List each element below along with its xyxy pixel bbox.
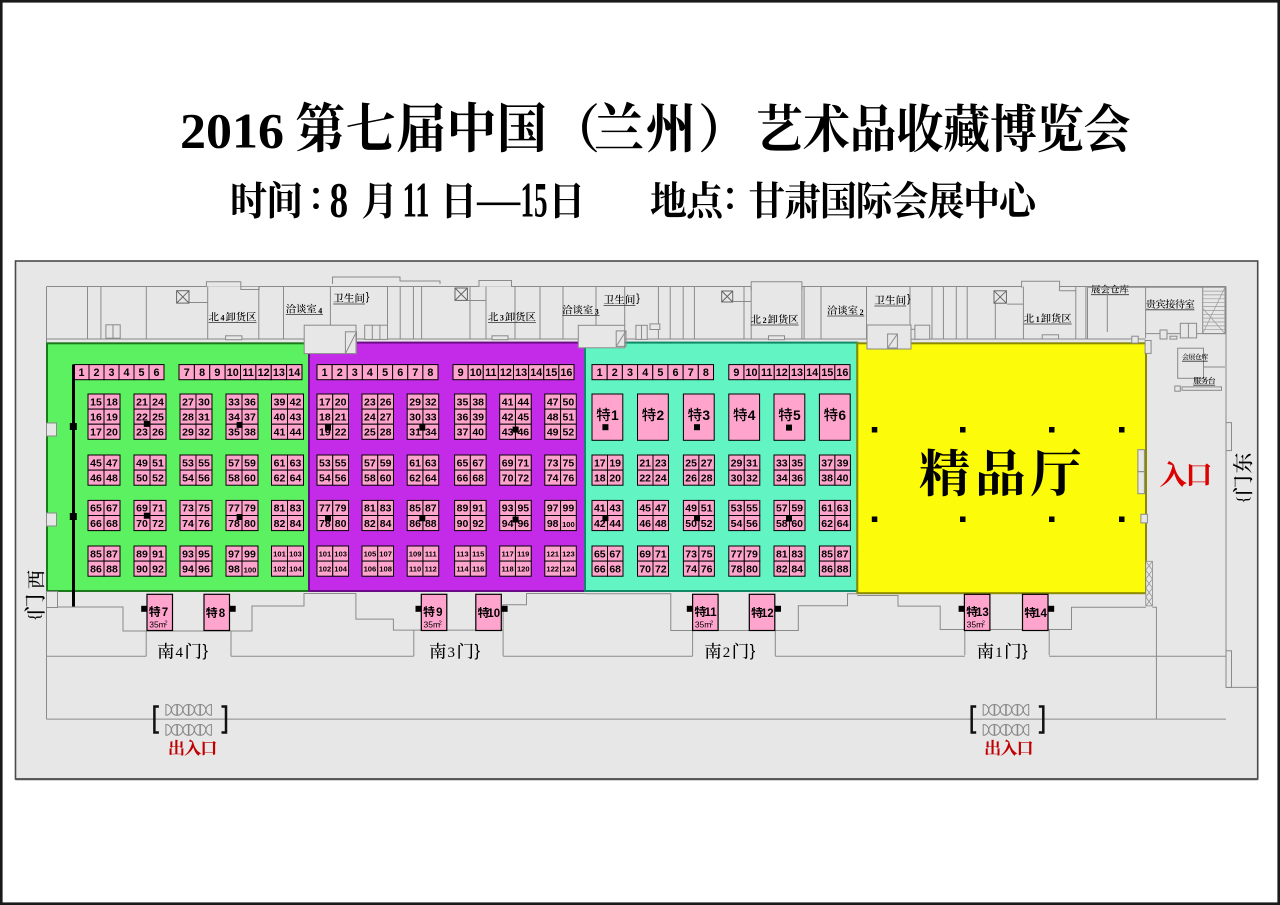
svg-text:80: 80 <box>746 563 758 575</box>
svg-text:37: 37 <box>821 457 833 469</box>
svg-text:36: 36 <box>457 411 469 423</box>
svg-text:11: 11 <box>403 172 430 228</box>
svg-text:94: 94 <box>182 563 194 575</box>
svg-text:}: } <box>636 293 640 305</box>
svg-text:50: 50 <box>136 472 148 484</box>
svg-text:61: 61 <box>821 503 833 515</box>
svg-text:36: 36 <box>244 396 256 408</box>
svg-text:11: 11 <box>242 367 253 379</box>
svg-text:80: 80 <box>244 518 256 530</box>
svg-text:62: 62 <box>821 518 833 530</box>
svg-text:2: 2 <box>164 621 167 627</box>
svg-text:5: 5 <box>793 408 801 423</box>
svg-text:16: 16 <box>560 367 572 379</box>
svg-text:2: 2 <box>93 367 99 379</box>
svg-text:26: 26 <box>380 396 392 408</box>
svg-text:24: 24 <box>152 396 164 408</box>
svg-text:86: 86 <box>821 563 833 575</box>
svg-text:57: 57 <box>228 457 240 469</box>
svg-text:39: 39 <box>274 396 286 408</box>
svg-text:22: 22 <box>639 472 651 484</box>
svg-text:43: 43 <box>290 411 302 423</box>
svg-text:36: 36 <box>791 472 803 484</box>
svg-text:42: 42 <box>290 396 302 408</box>
svg-text:2: 2 <box>710 621 713 627</box>
svg-text:10: 10 <box>470 367 482 379</box>
svg-text:80: 80 <box>335 518 347 530</box>
svg-text:2016: 2016 <box>180 103 284 159</box>
svg-text:95: 95 <box>198 548 210 560</box>
svg-text:84: 84 <box>380 518 392 530</box>
svg-text:114: 114 <box>456 564 469 573</box>
svg-text:102: 102 <box>273 564 286 573</box>
svg-text:6: 6 <box>397 367 403 379</box>
svg-text:76: 76 <box>563 472 575 484</box>
svg-text:83: 83 <box>380 503 392 515</box>
svg-text:90: 90 <box>136 563 148 575</box>
svg-text:81: 81 <box>776 548 788 560</box>
svg-text:1: 1 <box>611 408 619 423</box>
svg-text:9: 9 <box>458 367 464 379</box>
svg-text:71: 71 <box>152 503 164 515</box>
svg-text:115: 115 <box>472 549 485 558</box>
svg-text:76: 76 <box>198 518 210 530</box>
svg-text:98: 98 <box>228 563 240 575</box>
svg-text:53: 53 <box>731 503 743 515</box>
svg-text:98: 98 <box>547 518 559 530</box>
svg-text:1: 1 <box>78 367 84 379</box>
svg-text:7: 7 <box>412 367 418 379</box>
svg-text:33: 33 <box>425 411 437 423</box>
svg-text:19: 19 <box>609 457 621 469</box>
svg-text:28: 28 <box>380 427 392 439</box>
svg-text:3: 3 <box>448 645 456 661</box>
svg-text:15: 15 <box>521 172 548 228</box>
svg-text:}: } <box>27 613 46 621</box>
svg-text:39: 39 <box>837 457 849 469</box>
svg-text:31: 31 <box>746 457 758 469</box>
svg-text:85: 85 <box>409 503 421 515</box>
svg-text:71: 71 <box>655 548 667 560</box>
svg-text:54: 54 <box>319 472 331 484</box>
svg-text:82: 82 <box>776 563 788 575</box>
svg-text:105: 105 <box>364 549 377 558</box>
svg-text:67: 67 <box>106 503 118 515</box>
svg-text:16: 16 <box>836 367 848 379</box>
svg-text:12: 12 <box>776 367 788 379</box>
svg-text:59: 59 <box>380 457 392 469</box>
svg-text:15: 15 <box>821 367 833 379</box>
svg-text:14: 14 <box>1034 608 1047 620</box>
svg-text:110: 110 <box>409 564 421 573</box>
svg-text:55: 55 <box>746 503 758 515</box>
svg-text:47: 47 <box>106 457 118 469</box>
svg-text:48: 48 <box>106 472 118 484</box>
svg-text:44: 44 <box>609 518 621 530</box>
svg-text:10: 10 <box>487 608 500 620</box>
svg-text:60: 60 <box>244 472 256 484</box>
svg-text:35m: 35m <box>967 620 984 630</box>
svg-text:89: 89 <box>457 503 469 515</box>
svg-text:117: 117 <box>501 549 513 558</box>
svg-text:32: 32 <box>746 472 758 484</box>
svg-text:93: 93 <box>182 548 194 560</box>
svg-text:104: 104 <box>334 564 347 573</box>
svg-text:35m: 35m <box>424 620 441 630</box>
svg-text:15: 15 <box>545 367 557 379</box>
svg-text:77: 77 <box>731 548 743 560</box>
svg-text:4: 4 <box>642 367 648 379</box>
svg-text:20: 20 <box>609 472 621 484</box>
svg-text:53: 53 <box>182 457 194 469</box>
svg-text:85: 85 <box>821 548 833 560</box>
svg-text:56: 56 <box>335 472 347 484</box>
svg-text:7: 7 <box>688 367 694 379</box>
svg-text:4: 4 <box>367 367 373 379</box>
svg-text:43: 43 <box>502 427 514 439</box>
svg-text:23: 23 <box>364 396 376 408</box>
svg-text:30: 30 <box>198 396 210 408</box>
svg-text:6: 6 <box>153 367 159 379</box>
svg-text:101: 101 <box>319 549 332 558</box>
svg-text:40: 40 <box>472 427 484 439</box>
svg-text:45: 45 <box>639 503 651 515</box>
svg-text:92: 92 <box>472 518 484 530</box>
svg-text:68: 68 <box>106 518 118 530</box>
svg-text:81: 81 <box>364 503 376 515</box>
svg-text:26: 26 <box>152 427 164 439</box>
svg-text:21: 21 <box>639 457 651 469</box>
svg-text:33: 33 <box>228 396 240 408</box>
svg-text:72: 72 <box>517 472 529 484</box>
svg-text:38: 38 <box>472 396 484 408</box>
svg-text:83: 83 <box>290 503 302 515</box>
svg-text:99: 99 <box>244 548 256 560</box>
svg-text:14: 14 <box>806 367 818 379</box>
svg-text:94: 94 <box>502 518 514 530</box>
svg-text:2: 2 <box>763 316 767 325</box>
svg-text:54: 54 <box>731 518 743 530</box>
svg-text:29: 29 <box>182 427 194 439</box>
svg-text:29: 29 <box>409 396 421 408</box>
svg-text:90: 90 <box>457 518 469 530</box>
svg-text:99: 99 <box>563 503 575 515</box>
svg-text:67: 67 <box>609 548 621 560</box>
svg-text:112: 112 <box>425 564 437 573</box>
svg-text:35: 35 <box>228 427 240 439</box>
svg-text:84: 84 <box>791 563 803 575</box>
svg-text:46: 46 <box>639 518 651 530</box>
svg-text:4: 4 <box>176 645 184 661</box>
svg-text:11: 11 <box>761 367 772 379</box>
svg-text:88: 88 <box>837 563 849 575</box>
svg-text:33: 33 <box>776 457 788 469</box>
svg-text:20: 20 <box>106 427 118 439</box>
svg-text:93: 93 <box>502 503 514 515</box>
svg-text:}: } <box>907 293 911 305</box>
svg-text:116: 116 <box>472 564 484 573</box>
svg-text:73: 73 <box>547 457 559 469</box>
svg-text:2: 2 <box>723 645 731 661</box>
svg-text:25: 25 <box>152 411 164 423</box>
svg-text:56: 56 <box>746 518 758 530</box>
svg-text:76: 76 <box>701 563 713 575</box>
svg-text:82: 82 <box>364 518 376 530</box>
svg-text:79: 79 <box>746 548 758 560</box>
svg-text:5: 5 <box>657 367 663 379</box>
svg-text:8: 8 <box>330 172 349 228</box>
svg-text:1: 1 <box>995 645 1003 661</box>
svg-text:3: 3 <box>500 314 504 323</box>
svg-text:123: 123 <box>562 549 575 558</box>
svg-text:}: } <box>1235 496 1254 504</box>
svg-text:104: 104 <box>289 564 302 573</box>
svg-text:40: 40 <box>837 472 849 484</box>
svg-text:13: 13 <box>273 367 285 379</box>
svg-text:35m: 35m <box>149 620 166 630</box>
svg-text:91: 91 <box>152 548 164 560</box>
svg-text:74: 74 <box>685 563 697 575</box>
svg-text:21: 21 <box>136 396 148 408</box>
svg-text:120: 120 <box>517 564 530 573</box>
svg-text:8: 8 <box>703 367 709 379</box>
svg-text:18: 18 <box>319 411 331 423</box>
svg-text:48: 48 <box>547 411 559 423</box>
svg-text:}: } <box>1022 642 1028 660</box>
svg-text:59: 59 <box>791 503 803 515</box>
svg-text:72: 72 <box>152 518 164 530</box>
svg-text:23: 23 <box>136 427 148 439</box>
svg-text:3: 3 <box>108 367 114 379</box>
svg-text:71: 71 <box>517 457 529 469</box>
svg-text:87: 87 <box>106 548 118 560</box>
svg-text:24: 24 <box>364 411 376 423</box>
svg-text:30: 30 <box>409 411 421 423</box>
svg-text:4: 4 <box>221 314 225 323</box>
svg-text:32: 32 <box>198 427 210 439</box>
svg-text:41: 41 <box>594 503 606 515</box>
svg-text:10: 10 <box>745 367 757 379</box>
svg-text:13: 13 <box>515 367 527 379</box>
svg-text:30: 30 <box>731 472 743 484</box>
svg-text:13: 13 <box>791 367 803 379</box>
svg-text:17: 17 <box>594 457 606 469</box>
svg-text:20: 20 <box>335 396 347 408</box>
svg-text:52: 52 <box>152 472 164 484</box>
svg-text:1: 1 <box>597 367 603 379</box>
svg-text:26: 26 <box>685 472 697 484</box>
svg-text:15: 15 <box>90 396 102 408</box>
svg-text:27: 27 <box>380 411 392 423</box>
svg-text:95: 95 <box>517 503 529 515</box>
svg-text:60: 60 <box>380 472 392 484</box>
svg-text:56: 56 <box>198 472 210 484</box>
svg-text:2: 2 <box>337 367 343 379</box>
svg-text:66: 66 <box>90 518 102 530</box>
svg-text:29: 29 <box>731 457 743 469</box>
svg-text:88: 88 <box>106 563 118 575</box>
svg-text:9: 9 <box>214 367 220 379</box>
svg-text:63: 63 <box>425 457 437 469</box>
svg-text:57: 57 <box>364 457 376 469</box>
svg-text:62: 62 <box>274 472 286 484</box>
svg-text:73: 73 <box>685 548 697 560</box>
svg-text:103: 103 <box>334 549 347 558</box>
svg-text:77: 77 <box>319 503 331 515</box>
svg-text:121: 121 <box>546 549 559 558</box>
svg-text:106: 106 <box>364 564 377 573</box>
svg-text:68: 68 <box>609 563 621 575</box>
svg-text:122: 122 <box>546 564 559 573</box>
svg-text:50: 50 <box>563 396 575 408</box>
svg-text:52: 52 <box>701 518 713 530</box>
svg-text:7: 7 <box>162 607 168 619</box>
svg-text:8: 8 <box>199 367 205 379</box>
svg-text:34: 34 <box>425 427 437 439</box>
svg-text:}: } <box>475 642 481 660</box>
svg-text:70: 70 <box>639 563 651 575</box>
svg-text:72: 72 <box>655 563 667 575</box>
svg-text:53: 53 <box>319 457 331 469</box>
svg-text:}: } <box>750 642 756 660</box>
svg-text:58: 58 <box>364 472 376 484</box>
svg-text:1: 1 <box>322 367 328 379</box>
svg-text:96: 96 <box>198 563 210 575</box>
svg-text:103: 103 <box>289 549 302 558</box>
svg-text:11: 11 <box>705 607 718 619</box>
svg-text:63: 63 <box>290 457 302 469</box>
svg-text:16: 16 <box>90 411 102 423</box>
svg-text:14: 14 <box>288 367 300 379</box>
svg-text:60: 60 <box>791 518 803 530</box>
svg-text:13: 13 <box>976 607 989 619</box>
svg-text:6: 6 <box>838 408 846 423</box>
svg-text:45: 45 <box>90 457 102 469</box>
svg-text:3: 3 <box>627 367 633 379</box>
svg-text:84: 84 <box>290 518 302 530</box>
svg-text:66: 66 <box>594 563 606 575</box>
svg-text:35m: 35m <box>695 620 712 630</box>
svg-text:52: 52 <box>563 427 575 439</box>
svg-text:118: 118 <box>501 564 513 573</box>
svg-text:18: 18 <box>106 396 118 408</box>
svg-text:87: 87 <box>837 548 849 560</box>
svg-text:44: 44 <box>517 396 529 408</box>
svg-text:59: 59 <box>244 457 256 469</box>
svg-text:109: 109 <box>409 549 422 558</box>
svg-text:79: 79 <box>244 503 256 515</box>
svg-text:66: 66 <box>457 472 469 484</box>
svg-text:100: 100 <box>244 565 257 574</box>
svg-text:79: 79 <box>335 503 347 515</box>
svg-text:67: 67 <box>472 457 484 469</box>
svg-text:64: 64 <box>425 472 437 484</box>
svg-text:35: 35 <box>791 457 803 469</box>
svg-text:24: 24 <box>655 472 667 484</box>
svg-text:113: 113 <box>456 549 468 558</box>
svg-text:65: 65 <box>457 457 469 469</box>
svg-text:37: 37 <box>457 427 469 439</box>
svg-text:}: } <box>203 642 209 660</box>
svg-text:97: 97 <box>228 548 240 560</box>
svg-text:75: 75 <box>198 503 210 515</box>
svg-text:70: 70 <box>502 472 514 484</box>
svg-text:17: 17 <box>90 427 102 439</box>
svg-text:42: 42 <box>502 411 514 423</box>
svg-text:88: 88 <box>425 518 437 530</box>
svg-text:81: 81 <box>274 503 286 515</box>
svg-text:47: 47 <box>547 396 559 408</box>
svg-text:65: 65 <box>594 548 606 560</box>
svg-text:69: 69 <box>639 548 651 560</box>
svg-text:92: 92 <box>152 563 164 575</box>
svg-text:39: 39 <box>472 411 484 423</box>
svg-text:124: 124 <box>562 564 575 573</box>
svg-text:35: 35 <box>457 396 469 408</box>
svg-text:34: 34 <box>228 411 240 423</box>
svg-text:18: 18 <box>594 472 606 484</box>
svg-text:75: 75 <box>701 548 713 560</box>
svg-text:91: 91 <box>472 503 484 515</box>
svg-text:69: 69 <box>502 457 514 469</box>
svg-text:4: 4 <box>123 367 129 379</box>
svg-text:68: 68 <box>472 472 484 484</box>
svg-text:28: 28 <box>182 411 194 423</box>
svg-text:49: 49 <box>547 427 559 439</box>
svg-text:46: 46 <box>517 427 529 439</box>
svg-text:41: 41 <box>502 396 514 408</box>
svg-text:25: 25 <box>364 427 376 439</box>
svg-text:12: 12 <box>500 367 512 379</box>
svg-text:41: 41 <box>274 427 286 439</box>
svg-text:51: 51 <box>563 411 575 423</box>
svg-text:19: 19 <box>106 411 118 423</box>
svg-text:38: 38 <box>244 427 256 439</box>
svg-text:34: 34 <box>776 472 788 484</box>
svg-text:31: 31 <box>198 411 210 423</box>
svg-text:44: 44 <box>290 427 302 439</box>
svg-text:61: 61 <box>274 457 286 469</box>
svg-text:27: 27 <box>701 457 713 469</box>
svg-text:14: 14 <box>530 367 542 379</box>
svg-text:7: 7 <box>184 367 190 379</box>
svg-text:64: 64 <box>837 518 849 530</box>
svg-text:5: 5 <box>382 367 388 379</box>
svg-text:8: 8 <box>219 608 226 620</box>
svg-text:12: 12 <box>258 367 270 379</box>
svg-text:63: 63 <box>837 503 849 515</box>
svg-text:51: 51 <box>701 503 713 515</box>
svg-text:28: 28 <box>701 472 713 484</box>
svg-text:37: 37 <box>244 411 256 423</box>
svg-text:75: 75 <box>563 457 575 469</box>
svg-text:108: 108 <box>379 564 392 573</box>
svg-text:101: 101 <box>273 549 286 558</box>
svg-text:58: 58 <box>228 472 240 484</box>
svg-text:22: 22 <box>335 427 347 439</box>
svg-text:11: 11 <box>485 367 496 379</box>
svg-text:3: 3 <box>702 408 710 423</box>
svg-text:6: 6 <box>672 367 678 379</box>
svg-text:111: 111 <box>425 549 438 558</box>
svg-text:96: 96 <box>517 518 529 530</box>
svg-text:49: 49 <box>685 503 697 515</box>
svg-text:2: 2 <box>612 367 618 379</box>
svg-text:40: 40 <box>274 411 286 423</box>
svg-text:1: 1 <box>1036 315 1040 324</box>
svg-text:8: 8 <box>427 367 433 379</box>
svg-text:70: 70 <box>136 518 148 530</box>
